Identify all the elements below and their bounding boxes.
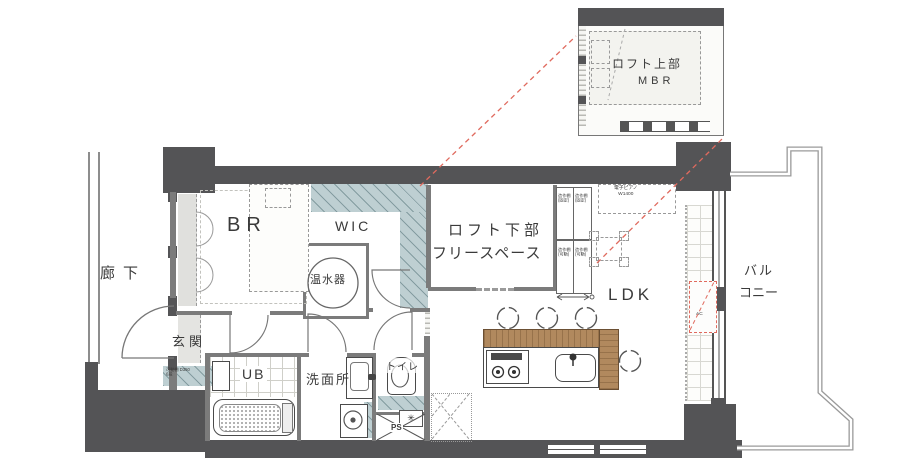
wall-br-bottom-a [176,311,232,315]
room-label-loft-lower-1: ロフト下部 [448,219,543,240]
shelf-fixed-word: (固定) [575,199,586,203]
piano-label-line1: 電子ピアノ [614,186,638,191]
toilet-door-arc [374,312,412,350]
tv-corner-a [589,231,599,241]
window-south-b [600,443,646,456]
room-label-wic: WIC [335,218,371,234]
room-label-water-heater: 温水器 [310,271,346,287]
room-label-balcony-2: コニー [739,282,778,301]
builtin-shelf-divider [556,239,591,241]
entrance-shelf-line2: 6段 [166,373,173,377]
loft-small-box-b [591,68,610,88]
shelf-word: 造作棚 [558,194,571,198]
wall-freespace-bottom-a [428,287,476,291]
room-label-entrance: 玄関 [172,331,206,350]
room-label-ub: UB [240,366,267,382]
washroom-faucet [368,374,376,380]
pillar-top-right [676,142,731,191]
room-label-ldk: LDK [608,285,653,305]
bed-pillow [265,188,291,208]
wall-wet-left [205,353,210,441]
shelf-word: 造作棚 [575,194,588,198]
ac-label: AC [696,312,703,318]
loft-inset-left-block-a [578,56,586,64]
shelf-movable-label-1: 造作棚 (可動) [558,248,571,258]
wall-freespace-bottom-dashed [476,288,514,291]
pillar-bottom-right [684,404,736,444]
washing-machine-pan [340,404,368,438]
wall-bottom [205,440,742,458]
wall-wet-top-a [205,353,309,357]
room-label-toilet: トイレ [386,358,419,373]
ub-vanity [212,361,230,391]
room-label-bedroom: BR [227,214,267,237]
shelf-arrow [557,294,589,300]
room-label-balcony-1: バル [744,260,774,279]
bathtub-end [282,403,293,433]
stove-grill [491,353,522,360]
wall-freespace-left [426,185,431,288]
wall-top [215,166,680,184]
sink [555,354,596,382]
br-door-arc [230,315,268,353]
window-mullion-bottom [711,398,726,406]
kitchen-counter-side [599,329,619,390]
piano-label: 電子ピアノ W1400 [614,186,638,198]
shelf-fixed-label-1: 造作棚 (固定) [558,194,571,204]
tv-corner-c [589,257,599,267]
loft-stair-column [400,212,428,308]
loft-stair-band [311,184,428,212]
entrance-door-arc [122,306,174,358]
wall-freespace-bottom-b [514,287,556,291]
shelf-movable-label-2: 造作棚 (可動) [575,248,588,258]
wall-mass-bottom-left [85,390,205,452]
shelf-arrow-dot [590,295,594,299]
pillar-top-left [163,147,215,193]
shelf-word: 造作棚 [558,248,571,252]
room-label-ps: PS [390,423,403,432]
shelf-movable-word: (可動) [558,253,569,257]
window-mullion-top [711,185,726,191]
shelf-fixed-label-2: 造作棚 (固定) [575,194,588,204]
shelf-word: 造作棚 [575,248,588,252]
floor-plan: ✳ [0,0,900,474]
loft-inset-left-block-b [578,96,586,104]
loft-inset-title: ロフト上部 [612,55,682,72]
wall-wet-right [424,336,430,441]
loft-inset-window [620,121,710,132]
corridor-outer-wall [88,152,100,364]
piano-label-line2: W1400 [618,192,633,197]
wall-left-upper [170,192,176,298]
loft-inset-subtitle: MBR [638,75,674,87]
ac-area [689,281,717,333]
entrance-shelf-label: 可動棚 D350 6段 [166,368,190,378]
br-closet-strip [178,194,197,306]
loft-inset-top-wall [578,8,724,26]
wall-ub-washroom [297,353,301,441]
washroom-vanity-bowl [350,362,369,391]
tv-corner-b [619,231,629,241]
window-south-a [548,443,594,456]
tv-corner-d [619,257,629,267]
room-label-loft-lower-2: フリースペース [432,242,541,263]
loft-small-box-a [591,40,610,64]
toilet-cabinet [378,396,424,410]
washroom-door-arc [308,314,346,352]
room-label-corridor: 廊下 [100,262,146,283]
entrance-shelf-line1: 可動棚 D350 [166,368,190,372]
loft-inset-left-hatch [579,26,586,126]
room-label-washroom: 洗面所 [306,369,351,388]
fridge-area [431,393,472,442]
wall-stub-left [85,362,98,392]
shelf-movable-word: (可動) [575,253,586,257]
bathtub-inner [219,404,281,432]
shelf-fixed-word: (固定) [558,199,569,203]
wall-br-bottom-b [270,311,307,315]
opening-edge-hatch [425,312,430,334]
